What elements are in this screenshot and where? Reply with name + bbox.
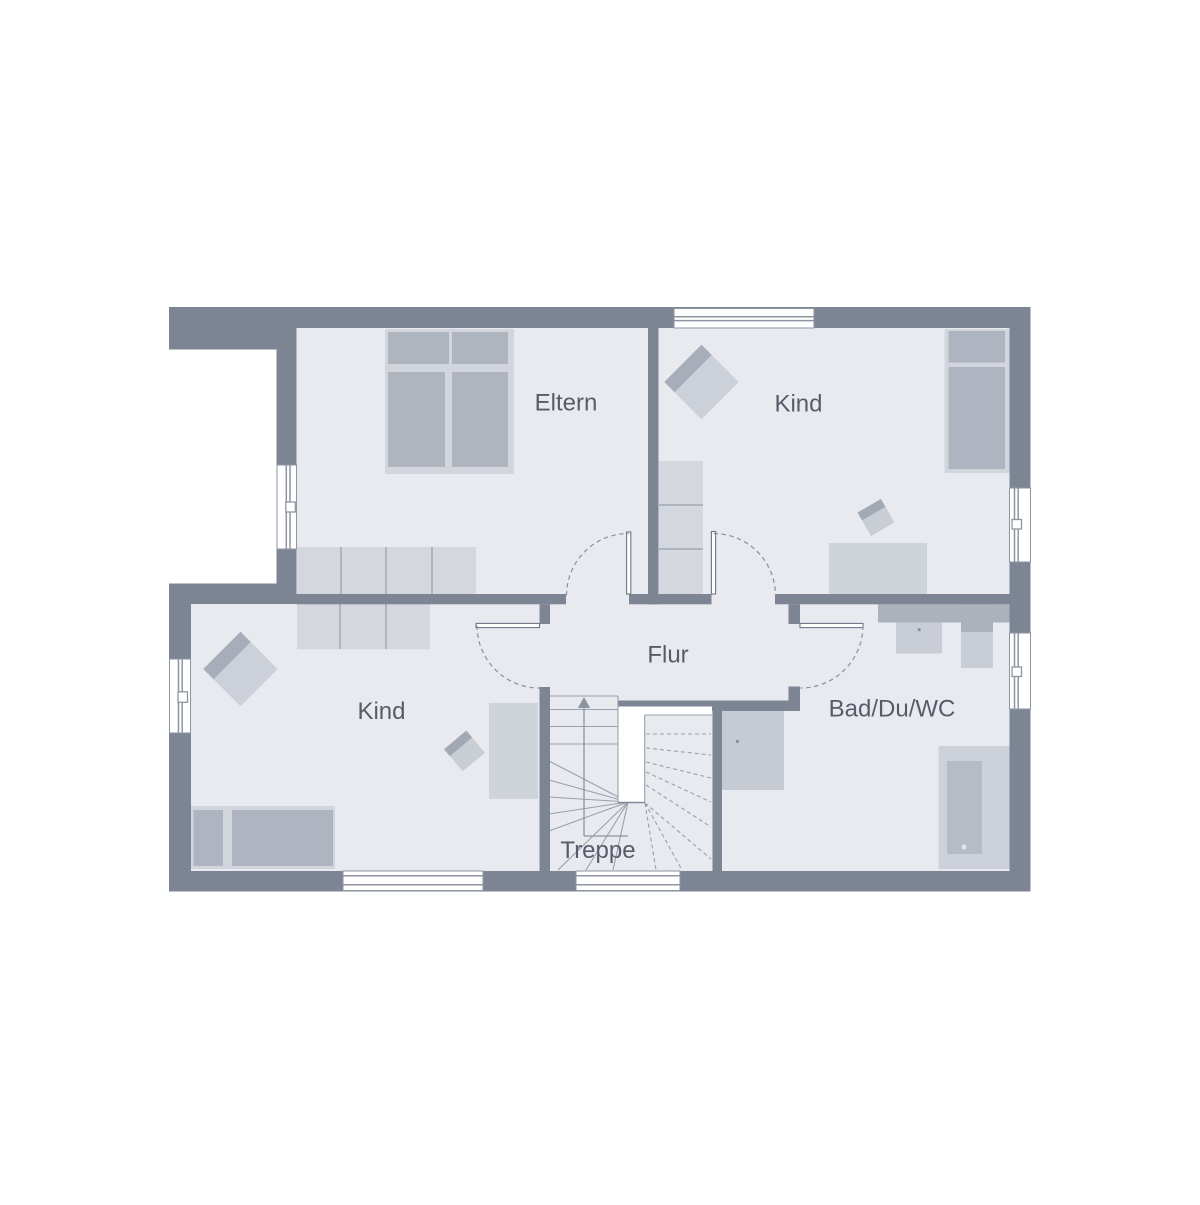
svg-text:Eltern: Eltern bbox=[535, 390, 598, 417]
svg-text:Bad/Du/WC: Bad/Du/WC bbox=[829, 696, 956, 723]
svg-text:Treppe: Treppe bbox=[560, 837, 635, 864]
svg-text:Kind: Kind bbox=[774, 391, 822, 418]
svg-text:Flur: Flur bbox=[647, 642, 688, 669]
svg-text:Kind: Kind bbox=[357, 698, 405, 725]
